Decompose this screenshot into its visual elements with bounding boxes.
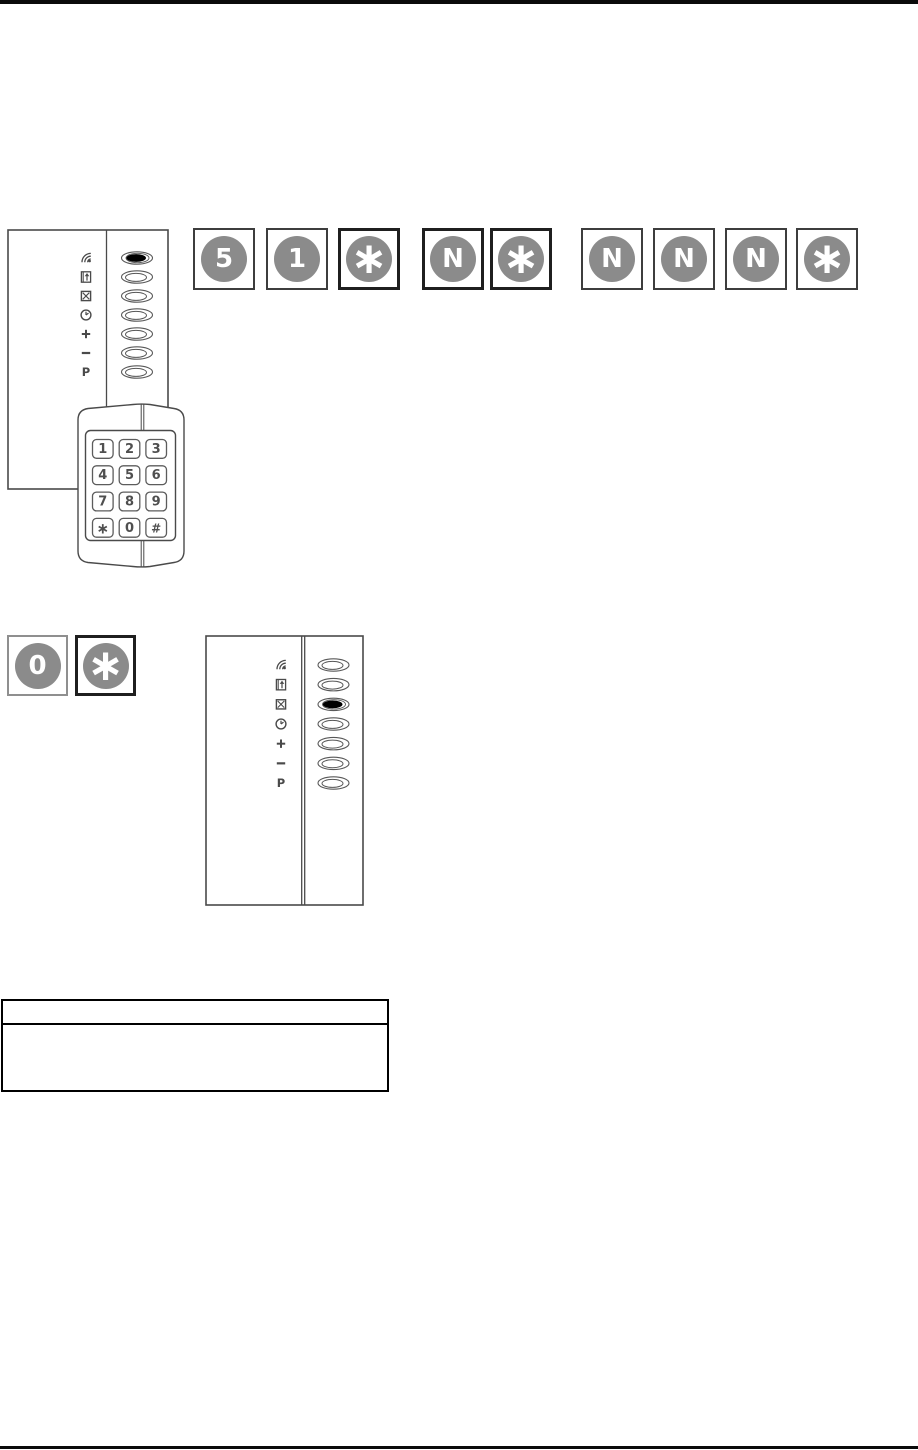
panel-outline — [206, 636, 363, 905]
keypad-key-6: 6 — [146, 466, 167, 485]
key-glyph: N — [442, 246, 464, 272]
keypad-key-9: 9 — [146, 492, 167, 511]
keypad-key-0: 0 — [119, 518, 140, 537]
key-button-N: N — [725, 228, 787, 290]
svg-text:0: 0 — [125, 521, 134, 536]
key-glyph: 1 — [288, 246, 306, 272]
manual-page: P123456789∗0# P 51∗N∗NNN∗0∗ — [0, 0, 918, 1450]
svg-text:6: 6 — [152, 468, 161, 483]
keypad-key-1: 1 — [93, 440, 114, 459]
key-glyph: 0 — [28, 653, 46, 679]
notes-table-header-row — [3, 1001, 387, 1025]
key-glyph: N — [745, 246, 767, 272]
key-button-star: ∗ — [490, 228, 552, 290]
letter-p-icon: P — [82, 365, 90, 379]
key-circle: 1 — [274, 236, 320, 282]
svg-text:∗: ∗ — [97, 519, 110, 537]
keypad-key-4: 4 — [93, 466, 114, 485]
svg-text:P: P — [82, 365, 90, 379]
keypad-key-hash: # — [146, 518, 167, 537]
key-circle: ∗ — [804, 236, 850, 282]
key-button-star: ∗ — [338, 228, 400, 290]
key-circle: N — [661, 236, 707, 282]
bottom-rule — [0, 1446, 918, 1449]
key-glyph: ∗ — [87, 644, 124, 688]
svg-text:4: 4 — [98, 468, 107, 483]
key-glyph: N — [673, 246, 695, 272]
key-circle: 0 — [15, 643, 61, 689]
svg-text:3: 3 — [152, 442, 161, 457]
key-button-star: ∗ — [796, 228, 858, 290]
svg-text:8: 8 — [125, 495, 134, 510]
key-glyph: ∗ — [503, 237, 540, 281]
key-button-N: N — [581, 228, 643, 290]
letter-p-icon: P — [277, 776, 285, 790]
keypad-figure: 123456789∗0# — [78, 404, 184, 567]
key-glyph: 5 — [215, 246, 233, 272]
svg-text:2: 2 — [125, 442, 134, 457]
key-glyph: N — [601, 246, 623, 272]
keypad-key-7: 7 — [93, 492, 114, 511]
key-circle: N — [430, 236, 476, 282]
notes-table-body-row — [3, 1025, 387, 1092]
svg-text:7: 7 — [98, 495, 107, 510]
key-glyph: ∗ — [809, 237, 846, 281]
key-button-star: ∗ — [75, 635, 136, 696]
key-circle: N — [733, 236, 779, 282]
keypad-key-3: 3 — [146, 440, 167, 459]
keypad-key-8: 8 — [119, 492, 140, 511]
key-button-0: 0 — [7, 635, 68, 696]
top-rule — [0, 0, 918, 4]
key-button-1: 1 — [266, 228, 328, 290]
key-button-5: 5 — [193, 228, 255, 290]
key-circle: 5 — [201, 236, 247, 282]
reader-panel-bottom-figure: P — [195, 630, 375, 915]
keypad-key-star: ∗ — [93, 518, 114, 537]
key-glyph: ∗ — [351, 237, 388, 281]
key-button-N: N — [422, 228, 484, 290]
notes-table — [1, 999, 389, 1092]
key-circle: ∗ — [498, 236, 544, 282]
svg-text:9: 9 — [152, 495, 161, 510]
key-circle: N — [589, 236, 635, 282]
keypad-key-2: 2 — [119, 440, 140, 459]
reader-panel-top-figure: P123456789∗0# — [0, 225, 200, 575]
keypad-key-5: 5 — [119, 466, 140, 485]
key-circle: ∗ — [346, 236, 392, 282]
svg-text:5: 5 — [125, 468, 134, 483]
svg-text:#: # — [151, 521, 161, 535]
svg-text:1: 1 — [98, 442, 107, 457]
key-circle: ∗ — [83, 643, 129, 689]
svg-text:P: P — [277, 776, 285, 790]
key-button-N: N — [653, 228, 715, 290]
